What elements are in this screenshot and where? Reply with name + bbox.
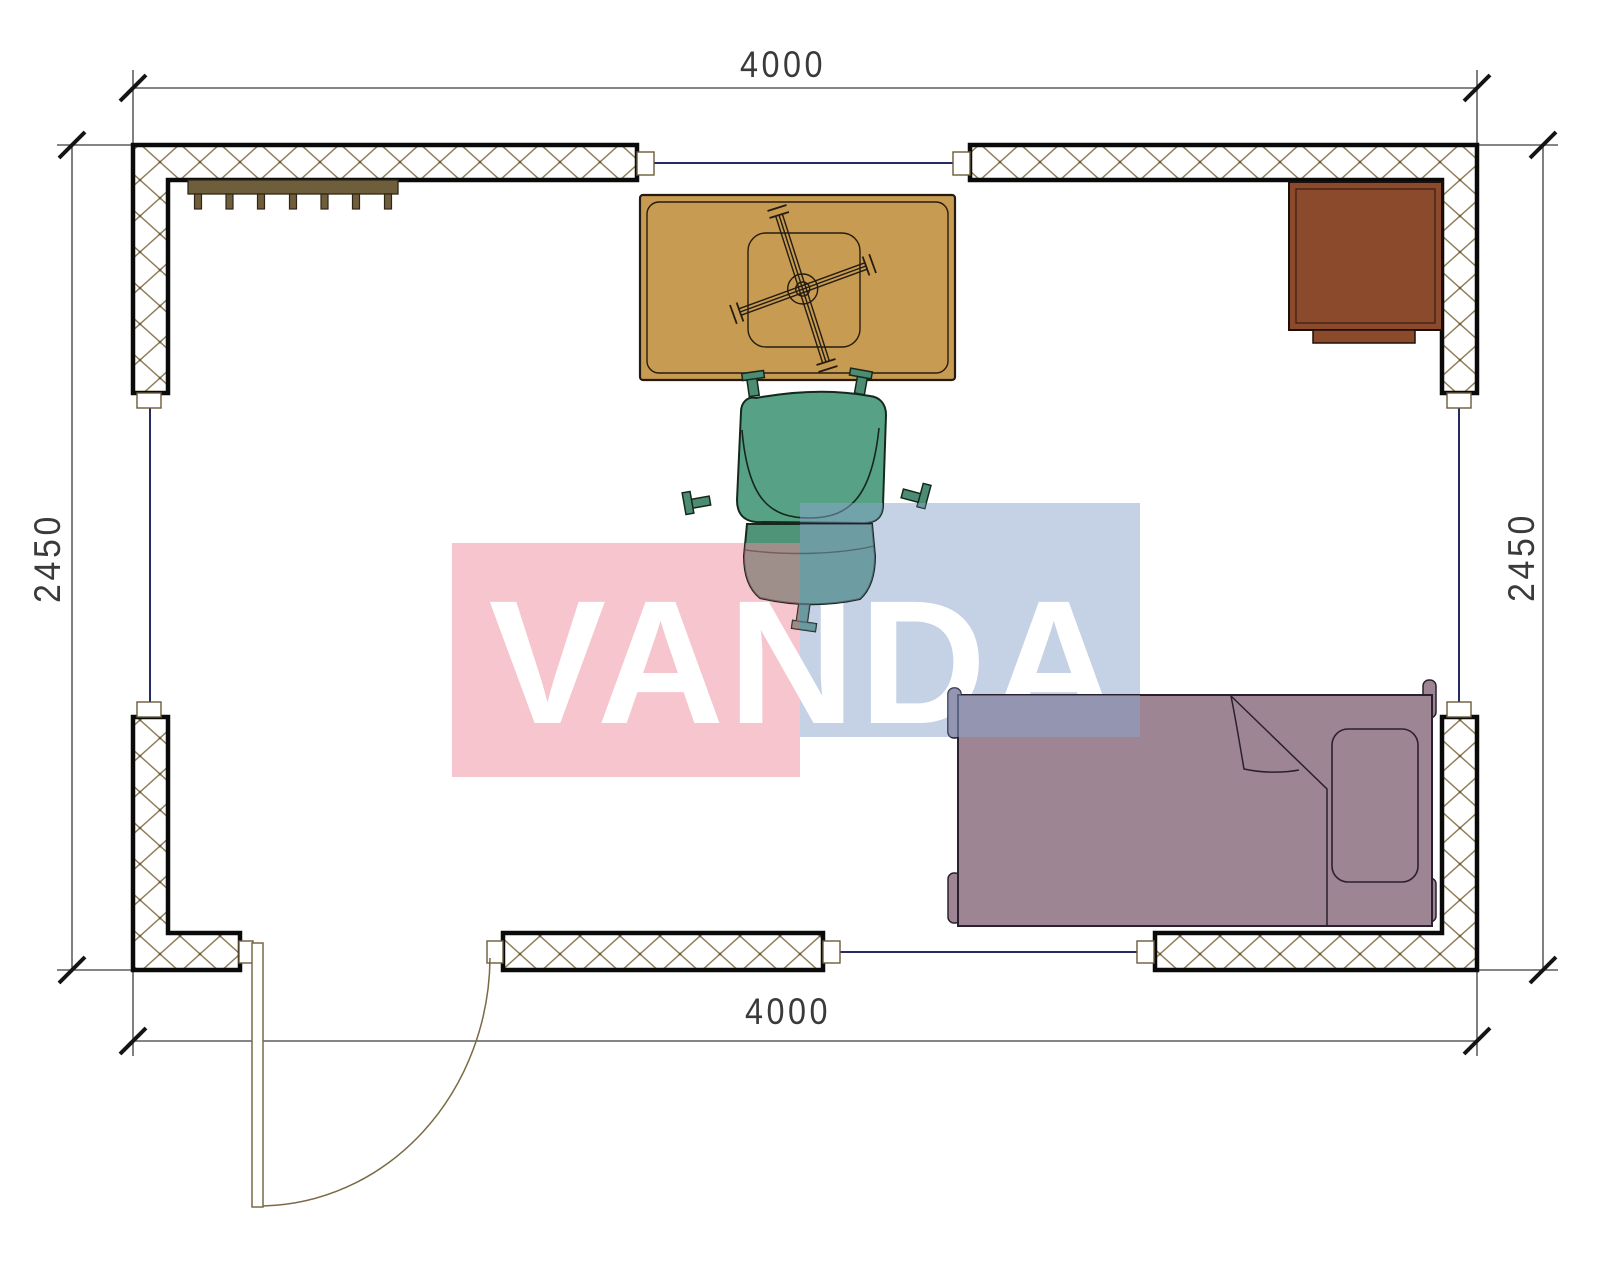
desk	[1289, 182, 1442, 343]
dimension-label-right: 2450	[1501, 512, 1542, 602]
dimension-left: 2450	[27, 132, 133, 983]
door-leaf	[252, 943, 263, 1207]
wall-bottom-middle	[503, 933, 823, 970]
door-swing-arc	[263, 958, 490, 1206]
dimension-label-top: 4000	[740, 44, 826, 85]
coat-rack	[188, 180, 398, 209]
dimension-label-bottom: 4000	[745, 991, 831, 1032]
dimension-bottom: 4000	[120, 970, 1490, 1056]
door	[252, 943, 490, 1207]
dimension-right: 2450	[1477, 132, 1558, 983]
dimension-top: 4000	[120, 44, 1490, 145]
floor-plan-page: 4000 4000 2450 2450	[0, 0, 1600, 1280]
wall-bottom-left	[133, 717, 240, 970]
dimension-label-left: 2450	[27, 513, 68, 603]
floor-plan-canvas: 4000 4000 2450 2450	[0, 0, 1600, 1280]
table	[640, 195, 955, 380]
